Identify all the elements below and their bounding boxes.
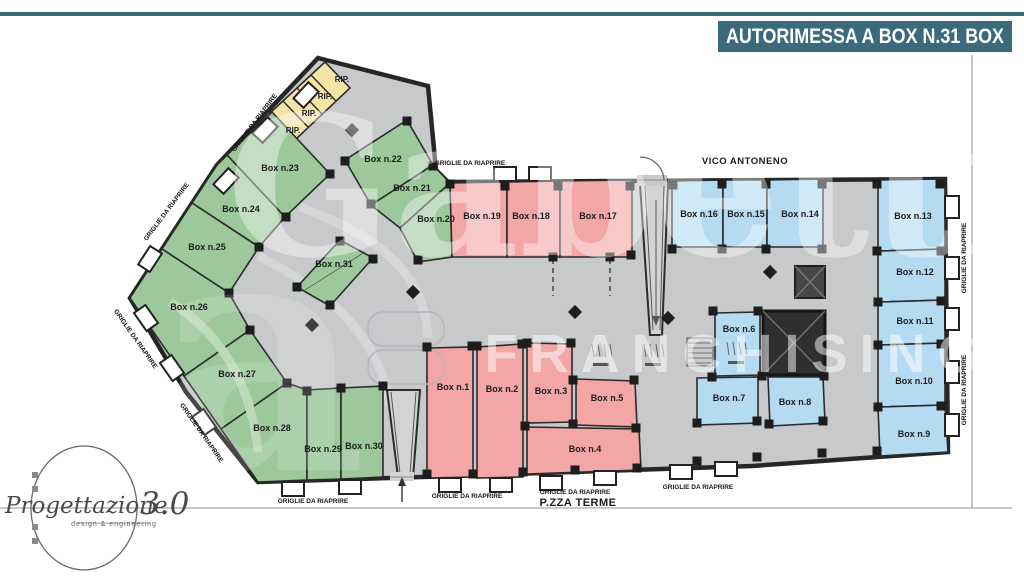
- pillar: [633, 464, 642, 473]
- pillar: [818, 449, 827, 458]
- grille-label: GRIGLIE DA RIAPRIRE: [663, 484, 734, 491]
- pillar: [519, 468, 528, 477]
- pillar: [569, 420, 578, 429]
- logo-square-icon: [32, 524, 38, 530]
- box-n22-label: Box n.22: [364, 154, 402, 164]
- grate-notch: [670, 465, 692, 479]
- box-n19-label: Box n.19: [463, 211, 501, 221]
- pillar: [874, 403, 883, 412]
- grille-label: GRIGLIE DA RIAPRIRE: [961, 222, 968, 293]
- box-n4-label: Box n.4: [569, 444, 602, 454]
- box-n15-label: Box n.15: [727, 209, 765, 219]
- pillar: [754, 307, 763, 316]
- pillar: [379, 382, 388, 391]
- grate-notch: [594, 471, 616, 485]
- page-title: AUTORIMESSA A BOX N.31 BOX: [726, 25, 1004, 48]
- grate-notch: [490, 478, 512, 492]
- grille-label: GRIGLIE DA RIAPRIRE: [961, 354, 968, 425]
- box-n11-label: Box n.11: [896, 316, 933, 326]
- logo-square-icon: [32, 486, 38, 492]
- box-n29-label: Box n.29: [304, 444, 342, 454]
- pillar: [693, 419, 702, 428]
- box-n5-label: Box n.5: [591, 393, 624, 403]
- pillar: [693, 457, 702, 466]
- grate-notch: [945, 414, 959, 436]
- storage-label: RIP.: [286, 126, 301, 135]
- pillar: [937, 402, 946, 411]
- box-n30-label: Box n.30: [345, 441, 383, 451]
- storage-label: RIP.: [302, 109, 317, 118]
- pillar: [423, 343, 432, 352]
- pillar: [632, 424, 641, 433]
- street-name-top: VICO ANTONENO: [702, 156, 788, 167]
- grille-label: GRIGLIE DA RIAPRIRE: [278, 498, 349, 505]
- box-n6-label: Box n.6: [723, 324, 756, 334]
- box-n31-label: Box n.31: [315, 259, 353, 269]
- pillar: [709, 307, 718, 316]
- grate-notch: [439, 478, 461, 492]
- box-n7-label: Box n.7: [713, 393, 746, 403]
- box-n27-label: Box n.27: [218, 369, 256, 379]
- pillar: [819, 417, 828, 426]
- storage-label: RIP.: [318, 92, 333, 101]
- pillar: [571, 466, 580, 475]
- pillar: [469, 470, 478, 479]
- box-n28-label: Box n.28: [253, 423, 291, 433]
- box-n13-label: Box n.13: [894, 211, 932, 221]
- header-rule: [0, 12, 1024, 16]
- box-n14-label: Box n.14: [781, 209, 819, 219]
- pillar: [753, 453, 762, 462]
- box-n16-label: Box n.16: [680, 209, 718, 219]
- box-n25-label: Box n.25: [188, 242, 226, 252]
- box-n26-label: Box n.26: [170, 302, 208, 312]
- pillar: [753, 417, 762, 426]
- box-n12-label: Box n.12: [896, 267, 934, 277]
- box-n1-area: [427, 347, 473, 478]
- box-n20-label: Box n.20: [417, 214, 455, 224]
- grille-label: GRIGLIE DA RIAPRIRE: [435, 160, 506, 167]
- pillar: [873, 447, 882, 456]
- grate-notch: [540, 476, 562, 490]
- pillar: [423, 470, 432, 479]
- storage-label: RIP.: [335, 75, 350, 84]
- logo-tagline: design & engineering: [71, 521, 157, 528]
- box-n21-label: Box n.21: [393, 183, 431, 193]
- pillar: [521, 422, 530, 431]
- street-name-bottom: P.ZZA TERME: [539, 497, 616, 509]
- logo-square-icon: [32, 472, 38, 478]
- box-n9-label: Box n.9: [898, 429, 931, 439]
- box-n24-label: Box n.24: [222, 204, 260, 214]
- box-n10-label: Box n.10: [895, 376, 933, 386]
- box-n17-label: Box n.17: [579, 211, 617, 221]
- logo-square-icon: [32, 538, 38, 544]
- pillar: [765, 420, 774, 429]
- box-n5-area: [576, 379, 637, 427]
- floor-plan-page: a Gabetti FRANCHISING Box n.1 Box n.2 Bo…: [0, 0, 1024, 577]
- floor-plan-drawing: a Gabetti FRANCHISING Box n.1 Box n.2 Bo…: [0, 0, 1024, 577]
- box-n3-label: Box n.3: [535, 386, 568, 396]
- grate-notch: [715, 462, 737, 476]
- box-n18-label: Box n.18: [512, 211, 550, 221]
- logo-version: 3.0: [140, 486, 189, 522]
- box-n23-label: Box n.23: [261, 163, 299, 173]
- box-n2-label: Box n.2: [486, 384, 519, 394]
- box-n8-label: Box n.8: [779, 397, 812, 407]
- pillar: [473, 342, 482, 351]
- box-n1-label: Box n.1: [437, 382, 470, 392]
- grille-label: GRIGLIE DA RIAPRIRE: [540, 489, 611, 496]
- grille-label: GRIGLIE DA RIAPRIRE: [432, 493, 503, 500]
